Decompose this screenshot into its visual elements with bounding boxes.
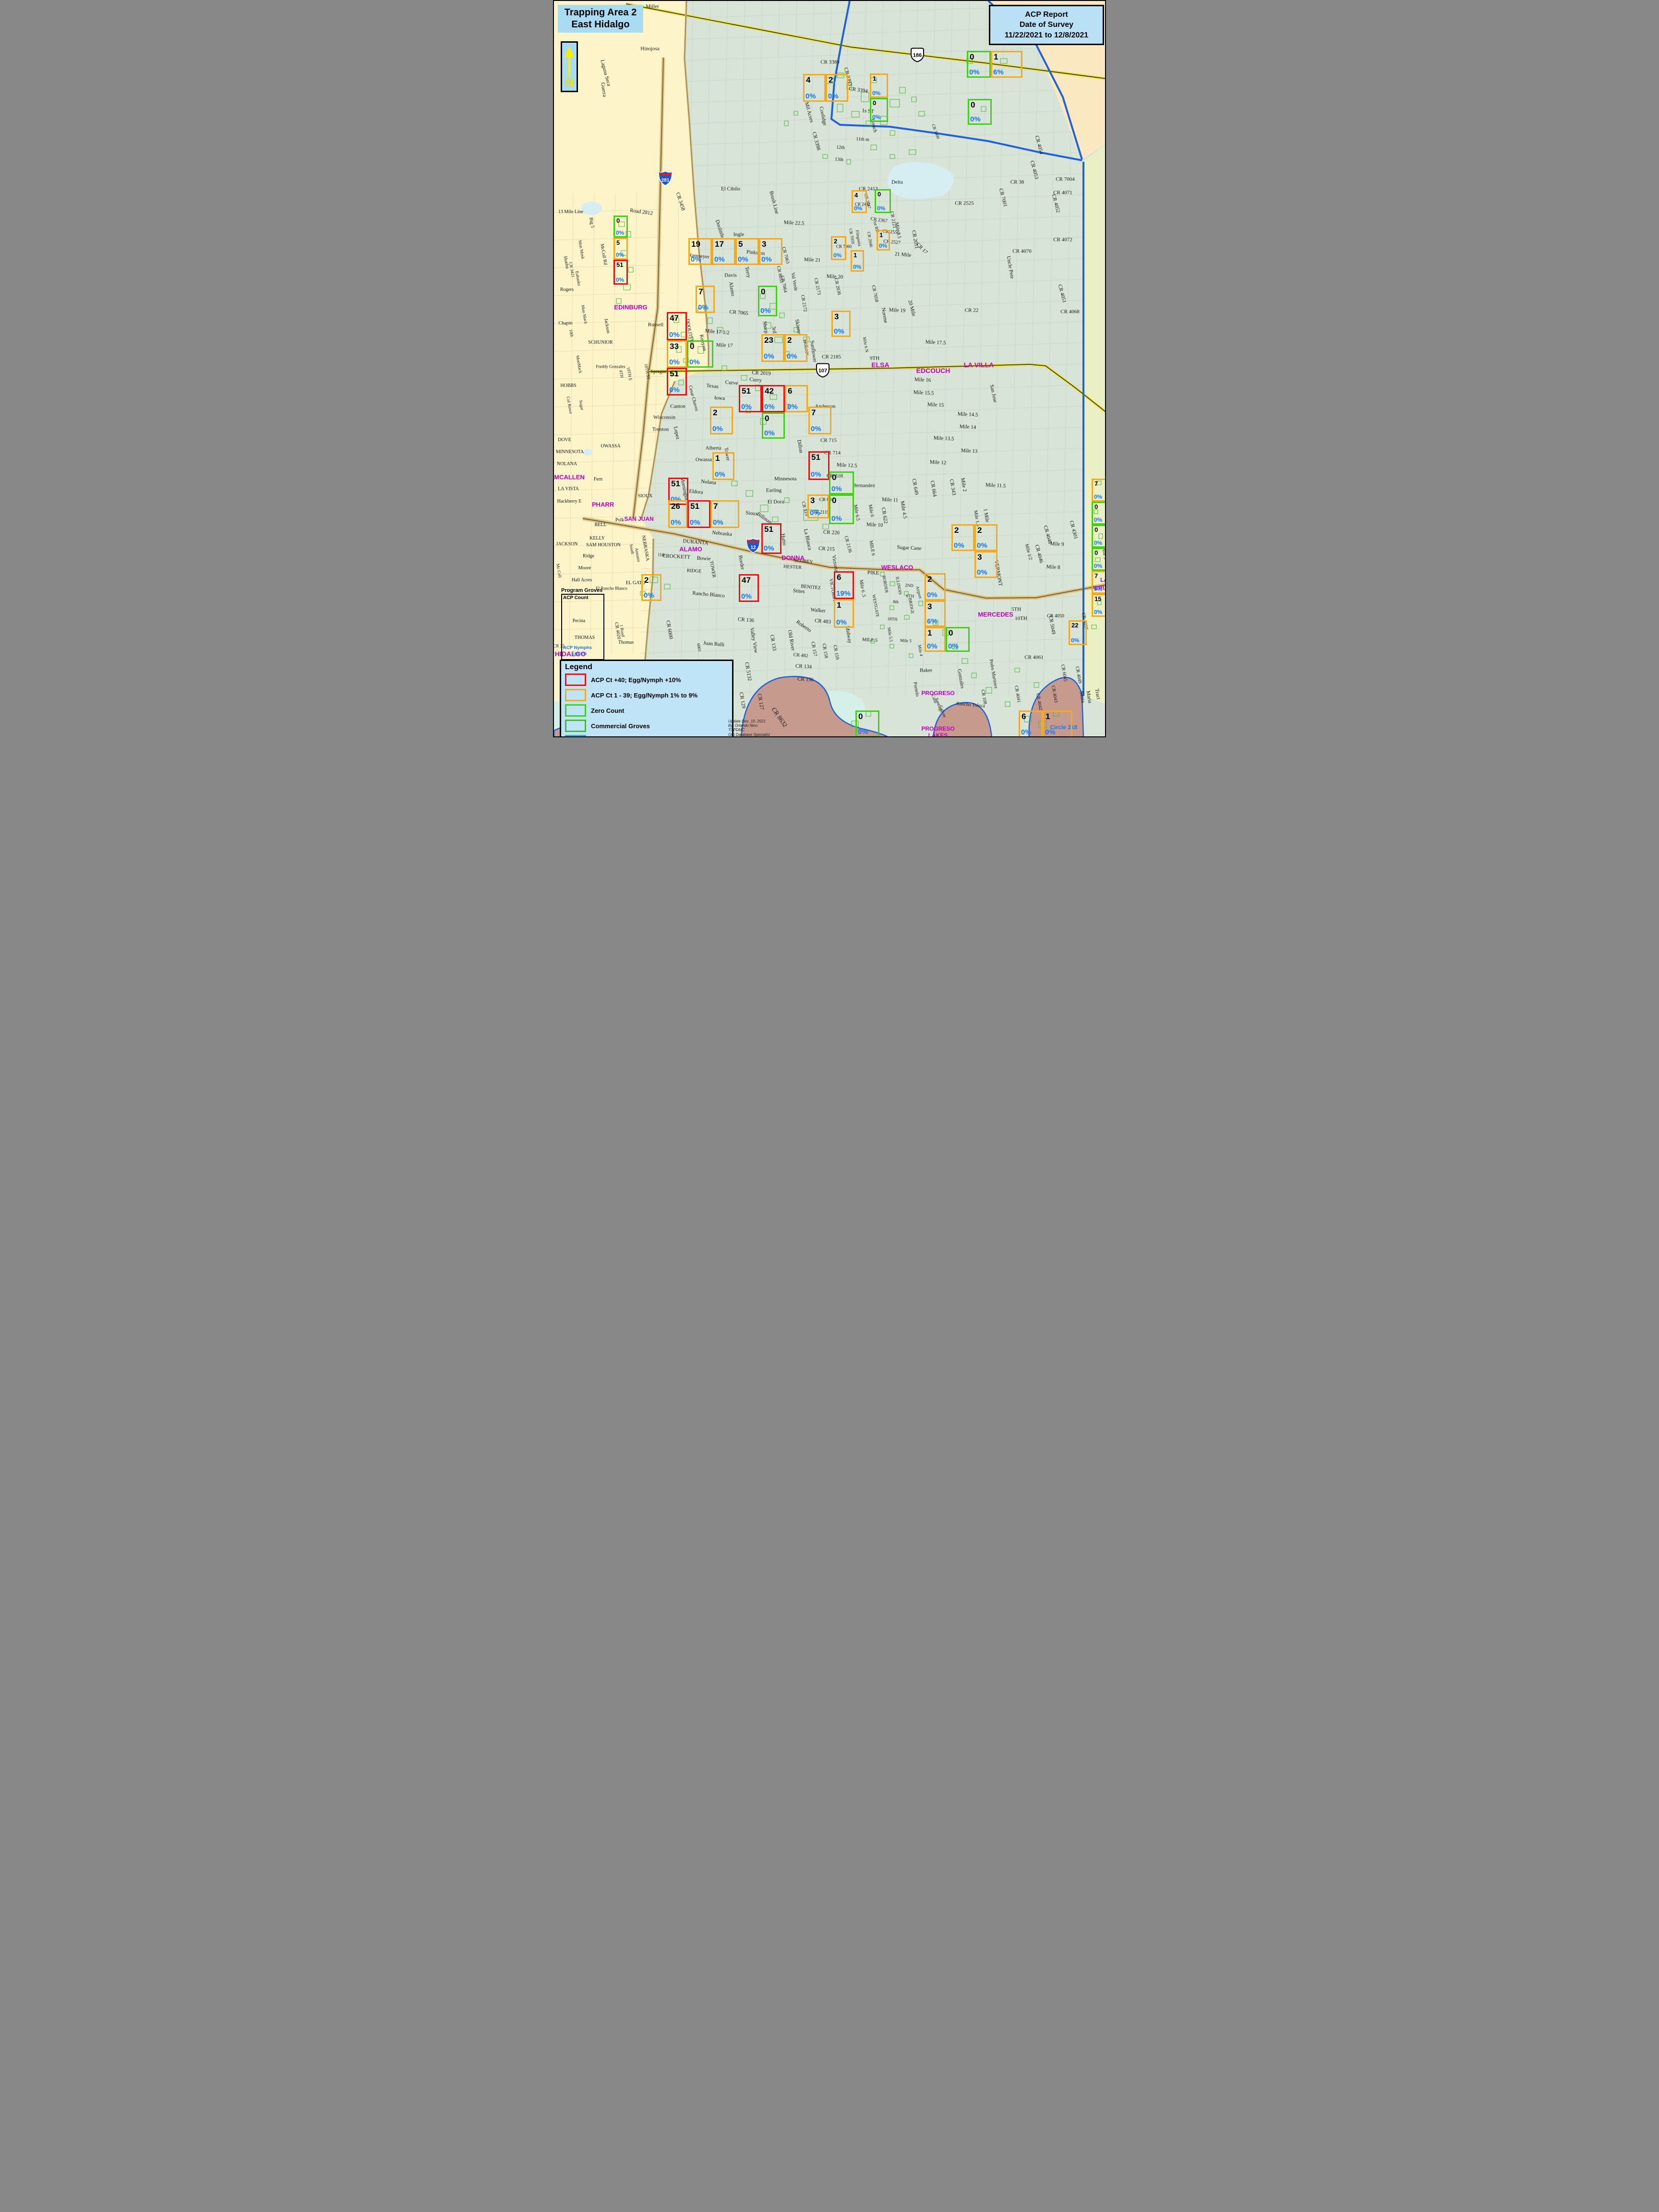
road-label: 18TH [887, 617, 897, 622]
acp-count: 7 [698, 287, 703, 297]
survey-box: 00% [829, 471, 854, 494]
egg-nymph-pct: 0% [1071, 637, 1079, 644]
update-note-line: By: Orlando Nino [728, 723, 770, 728]
program-groves-title: Program Groves [561, 588, 619, 593]
road-label: Moore [578, 566, 591, 571]
road-label: Ingle [733, 232, 745, 238]
city-label: ALAMO [679, 546, 702, 553]
survey-box: 00% [875, 189, 891, 213]
road-label: Mile 15 [927, 402, 944, 409]
road-label: HESTER [783, 565, 802, 570]
egg-nymph-pct: 0% [1094, 563, 1102, 569]
road-label: RIDGE [686, 568, 701, 574]
north-arrow-icon [562, 45, 577, 78]
legend-swatch [565, 689, 586, 701]
egg-nymph-pct: 0% [877, 205, 885, 212]
survey-box: 190% [688, 238, 712, 265]
city-label: PROGRESO [921, 690, 954, 696]
survey-box: 70% [1092, 479, 1106, 502]
road-label: Mile 14.5 [957, 411, 978, 418]
acp-count: 5 [616, 239, 620, 246]
legend-label: Zero Count [591, 707, 624, 714]
egg-nymph-pct: 0% [616, 229, 624, 236]
egg-nymph-pct: 0% [834, 327, 844, 336]
legend-swatch [565, 704, 586, 717]
road-label: Thomas [618, 640, 634, 645]
acp-count: 2 [644, 576, 649, 585]
acp-count: 1 [715, 454, 720, 463]
survey-box: 70% [1092, 571, 1106, 594]
legend-label: ACP Ct 1 - 39; Egg/Nymph 1% to 9% [591, 692, 697, 699]
survey-box: 00% [687, 340, 713, 368]
acp-nymphs-label: ACP Nymphs [563, 645, 592, 650]
road-label: Hall Acres [572, 578, 592, 583]
acp-count: 47 [742, 576, 751, 585]
update-notes: Update Dec. 10, 2021By: Orlando NinoTCPD… [728, 719, 770, 737]
svg-text:281: 281 [661, 178, 670, 183]
survey-box: 10% [851, 250, 864, 272]
road-label: 13 Mile Line [558, 210, 583, 215]
survey-box: 260% [668, 500, 687, 528]
egg-nymph-pct: 0% [715, 470, 725, 479]
road-label: 12th [836, 145, 845, 151]
survey-box: 40% [803, 74, 826, 102]
egg-nymph-pct: 0% [616, 252, 624, 258]
survey-box: 10% [1043, 710, 1072, 737]
road-label: CR 4068 [1060, 310, 1079, 315]
city-label: SAN JUAN [624, 516, 653, 522]
update-note-line: GIS Database Specialist [728, 733, 770, 737]
egg-nymph-pct: 0% [977, 568, 987, 577]
egg-nymph-pct: 0% [669, 386, 680, 394]
egg-nymph-pct: 0% [787, 403, 798, 411]
acp-count: 7 [811, 408, 816, 418]
acp-count: 0 [832, 496, 836, 505]
acp-count: 0 [858, 712, 863, 721]
egg-nymph-pct: 0% [811, 425, 821, 433]
road-label: Mile 13.5 [933, 435, 954, 442]
egg-nymph-pct: 0% [1045, 728, 1056, 736]
egg-nymph-pct: 0% [1094, 517, 1102, 523]
acp-count: 23 [764, 336, 773, 345]
acp-count: 0 [971, 100, 975, 110]
survey-box: 00% [1092, 502, 1106, 525]
egg-nymph-pct: 19% [836, 589, 851, 598]
city-label: PHARR [592, 502, 614, 508]
survey-box: 00% [870, 98, 888, 122]
egg-nymph-pct: 0% [669, 331, 680, 339]
egg-nymph-pct: 0% [671, 518, 681, 527]
acp-count-label: ACP Count [563, 595, 589, 601]
legend: Legend ACP Ct +40; Egg/Nymph +10%ACP Ct … [560, 660, 733, 737]
egg-nymph-pct: 0% [954, 541, 964, 550]
acp-count: 33 [670, 342, 679, 351]
north-arrow: N [561, 41, 578, 92]
acp-count: 3 [762, 240, 766, 249]
road-label: Mile 13 [961, 448, 977, 455]
egg-nymph-pct: 0% [698, 303, 709, 312]
egg-nymph-pct: 0% [872, 90, 880, 96]
road-label: Fern [594, 477, 602, 482]
road-label: CR 2525 [955, 201, 974, 206]
acp-count: 47 [670, 313, 679, 323]
map-title-box: Trapping Area 2 East Hidalgo [558, 5, 643, 33]
road-label: CR 4050 [1047, 614, 1064, 619]
acp-count: 7 [1094, 480, 1098, 487]
survey-box: 150% [1092, 594, 1106, 617]
acp-count: 0 [873, 99, 876, 107]
egg-nymph-pct: 0% [853, 264, 861, 270]
road-label: Mile 21 [804, 257, 820, 264]
legend-item: ACP Ct +40; Egg/Nymph +10% [565, 673, 728, 686]
road-label: Mile 9 [1050, 541, 1064, 548]
svg-text:107: 107 [818, 368, 827, 374]
acp-count: 0 [1094, 503, 1098, 510]
survey-box: 30% [759, 238, 782, 265]
egg-nymph-pct: 0% [969, 68, 980, 76]
survey-box: 30% [807, 494, 829, 518]
acp-count: 0 [616, 217, 620, 224]
acp-count: 3 [977, 553, 982, 562]
road-label: Chapin [559, 321, 573, 326]
acp-count: 51 [670, 369, 679, 379]
acp-count: 4 [854, 192, 858, 199]
survey-box: 510% [667, 368, 687, 396]
road-label: 5TH [1011, 607, 1021, 613]
egg-nymph-pct: 0% [927, 642, 938, 650]
road-label: Mile 5 [900, 638, 912, 643]
road-label: Davis [724, 273, 737, 278]
road-label: Iowa [714, 396, 725, 401]
egg-nymph-pct: 0% [714, 255, 725, 264]
legend-item: Route Boundaries [565, 735, 728, 737]
survey-box: 10% [925, 627, 946, 652]
road-label: 2ND [905, 583, 914, 588]
egg-nymph-pct: 0% [691, 255, 701, 264]
road-label: Delta [891, 180, 903, 185]
road-label: Texas [706, 383, 719, 389]
egg-nymph-pct: 0% [1094, 493, 1102, 500]
road-label: Mile 19 [889, 308, 905, 314]
acp-count: 3 [834, 312, 839, 322]
egg-nymph-pct: 0% [764, 429, 775, 437]
city-label: EDINBURG [614, 304, 647, 311]
survey-box: 510% [687, 500, 710, 528]
survey-box: 510% [739, 385, 762, 412]
road-label: SAM HOUSTON [586, 543, 621, 548]
road-label: El Cibilo [721, 187, 740, 192]
program-groves-box: ACP Count ACP Nymphs - Eggs% [561, 594, 604, 660]
road-label: Mile 10 [866, 522, 883, 529]
survey-box: 00% [1092, 548, 1106, 571]
road-label: CR 134 [795, 664, 812, 670]
north-label: N [565, 76, 573, 90]
road-label: Hackberry E [557, 499, 582, 504]
survey-box: 510% [613, 260, 628, 285]
city-label: PROGRESO [921, 726, 954, 732]
acp-count: 0 [878, 191, 881, 198]
survey-box: 00% [946, 627, 970, 652]
egg-nymph-pct: 0% [760, 307, 771, 315]
road-label: SIOUX [638, 494, 653, 499]
acp-count: 0 [761, 287, 765, 297]
road-label: Mile 12 [929, 460, 946, 466]
survey-box: 30% [831, 311, 851, 337]
road-label: LA VISTA [558, 487, 579, 492]
acp-count: 0 [970, 52, 974, 62]
acp-count: 6 [1022, 712, 1026, 721]
city-label: WESLACO [881, 565, 913, 571]
legend-label: Commercial Groves [591, 722, 650, 730]
road-label: Alberta [706, 446, 721, 451]
legend-title: Legend [565, 663, 728, 672]
survey-box: 510% [761, 523, 781, 554]
survey-box: 10% [877, 230, 890, 251]
report-line2: Date of Survey [1020, 20, 1073, 30]
acp-count: 1 [994, 52, 998, 62]
update-note-line: TCPDMC [728, 728, 770, 732]
update-note-line: For TCPDMC use only. [728, 737, 770, 737]
acp-count: 51 [616, 261, 623, 268]
city-label: ELSA [871, 361, 889, 368]
acp-count: 51 [671, 479, 680, 489]
acp-count: 1 [873, 75, 876, 82]
legend-item: ACP Ct 1 - 39; Egg/Nymph 1% to 9% [565, 689, 728, 701]
road-label: 8th [893, 600, 899, 604]
egg-nymph-pct: 0% [858, 728, 868, 736]
road-label: CR 22 [965, 308, 978, 313]
road-label: CR 7004 [1056, 177, 1074, 182]
egg-nymph-pct: 0% [787, 352, 797, 361]
survey-box: 30% [974, 551, 998, 578]
acp-count: 0 [690, 342, 694, 351]
road-label: CR 4070 [1012, 249, 1031, 254]
survey-box: 50% [735, 238, 759, 265]
survey-box: 220% [1069, 620, 1087, 645]
road-label: 4TH [618, 370, 624, 378]
survey-box: 619% [834, 571, 854, 599]
road-label: BELL [595, 523, 607, 528]
legend-label: ACP Ct +40; Egg/Nymph +10% [591, 676, 681, 684]
egg-nymph-pct: 0% [810, 509, 820, 517]
pond [583, 449, 592, 456]
map-title-line2: East Hidalgo [571, 19, 629, 31]
acp-count: 19 [691, 240, 700, 249]
survey-box: 16% [991, 51, 1022, 78]
egg-nymph-pct: 0% [764, 544, 774, 553]
survey-box: 00% [762, 412, 785, 439]
program-groves-key: Program Groves ACP Count ACP Nymphs - Eg… [561, 588, 619, 660]
legend-items: ACP Ct +40; Egg/Nymph +10%ACP Ct 1 - 39;… [565, 673, 728, 737]
survey-box: 70% [808, 407, 831, 434]
road-label: Rogers [560, 288, 574, 292]
survey-box: 10% [834, 599, 854, 628]
acp-count: 0 [949, 628, 953, 638]
road-label: Hinojosa [640, 47, 660, 52]
survey-box: 20% [826, 74, 848, 102]
survey-box: 510% [808, 451, 829, 480]
survey-box: 50% [613, 238, 628, 260]
road-label: El Dora [768, 500, 784, 505]
legend-item: Commercial Groves [565, 720, 728, 732]
survey-box: 70% [710, 500, 739, 528]
acp-survey-map: MillerHinojosaLaguna SecaGuerra13 Mile L… [553, 0, 1106, 737]
road-label: Hernandez [852, 483, 875, 489]
survey-box: 20% [784, 334, 807, 362]
road-label: CR 4072 [1053, 238, 1072, 243]
interstate-shield-12: 12 [745, 538, 761, 556]
acp-count: 1 [854, 252, 857, 259]
acp-count: 1 [927, 628, 932, 638]
survey-box: 20% [710, 407, 733, 434]
road-label: OWASSA [601, 444, 620, 449]
road-label: 6001 [696, 643, 702, 652]
egg-nymph-pct: 0% [1094, 609, 1102, 615]
road-label: Trenton [652, 427, 669, 433]
road-label: Mile 22.5 [783, 220, 804, 226]
us-highway-shield-186: 186 [909, 48, 926, 65]
acp-count: 2 [977, 526, 982, 535]
road-label: Mile 17 [716, 343, 733, 349]
road-label: Mile 17.5 [925, 339, 946, 346]
report-line1: ACP Report [1025, 10, 1068, 20]
survey-box: 170% [712, 238, 735, 265]
acp-count: 0 [765, 414, 769, 423]
acp-count: 2 [713, 408, 717, 418]
survey-box: 36% [925, 601, 946, 627]
road-label: CR 2185 [822, 355, 841, 360]
road-label: NOLANA [557, 462, 577, 467]
egg-nymph-pct: 0% [872, 114, 880, 120]
road-label: Polk [615, 518, 624, 523]
acp-count: 1 [837, 601, 841, 610]
road-label: CR 38 [1010, 180, 1024, 185]
egg-nymph-pct: 0% [1094, 586, 1102, 592]
survey-box: 20% [925, 573, 946, 601]
survey-box: 20% [974, 524, 998, 551]
acp-count: 2 [787, 336, 792, 345]
acp-count: 0 [1094, 549, 1098, 556]
egg-nymph-pct: 0% [761, 255, 772, 264]
survey-box: 470% [667, 312, 687, 340]
road-label: Mile 8 [1046, 565, 1060, 571]
road-label: 3rd [770, 326, 777, 334]
road-label: CR 715 [820, 438, 837, 444]
road-label: MINNESOTA [556, 450, 584, 455]
egg-nymph-pct: 6% [993, 68, 1004, 76]
egg-nymph-pct: 0% [833, 252, 842, 259]
road-label: Mile 12.5 [836, 462, 857, 469]
acp-count: 51 [742, 386, 751, 396]
survey-box: 40% [852, 190, 867, 213]
acp-count: 26 [671, 502, 680, 511]
egg-nymph-pct: 0% [854, 205, 862, 212]
egg-nymph-pct: 0% [831, 515, 842, 523]
road-label: Minnesota [774, 477, 796, 482]
pond [581, 202, 602, 215]
road-label: Wisconsin [653, 415, 675, 421]
road-label: Mile 11 [882, 497, 899, 504]
report-dates: 11/22/2021 to 12/8/2021 [1005, 30, 1088, 41]
report-box: ACP Report Date of Survey 11/22/2021 to … [989, 5, 1104, 45]
road-label: Freddy Gonzales [596, 365, 625, 369]
acp-count: 1 [1046, 712, 1050, 721]
egg-nymph-pct: 0% [1094, 540, 1102, 546]
survey-box: 20% [951, 524, 974, 551]
survey-box: 230% [761, 334, 784, 362]
egg-nymph-pct: 0% [690, 518, 700, 527]
road-label: Mile 16 [914, 377, 931, 384]
acp-count: 6 [788, 386, 792, 396]
egg-nymph-pct: 0% [927, 591, 938, 599]
egg-nymph-pct: 0% [713, 518, 723, 527]
survey-box: 60% [1019, 710, 1043, 737]
road-label: PIKE [867, 570, 879, 576]
us-highway-shield-107: 107 [815, 363, 831, 380]
egg-nymph-pct: 0% [741, 403, 752, 411]
road-label: Mile 14 [959, 424, 976, 431]
egg-nymph-pct: 0% [764, 403, 775, 411]
egg-nymph-pct: 0% [1021, 728, 1032, 736]
acp-count: 42 [765, 386, 774, 396]
survey-box: 20% [831, 236, 846, 260]
road-label: Curve [725, 380, 738, 386]
acp-count: 3 [810, 496, 815, 505]
egg-nymph-pct: 0% [828, 92, 839, 100]
survey-box: 00% [1092, 525, 1106, 548]
egg-nymph-pct: 0% [948, 642, 959, 650]
eggs-pct-label: - Eggs% [569, 651, 587, 656]
road-label: Owassa [696, 457, 712, 463]
egg-nymph-pct: 0% [831, 485, 842, 493]
svg-text:12: 12 [750, 545, 756, 551]
acp-count: 7 [1094, 572, 1098, 579]
road-label: 10TH [1015, 616, 1027, 622]
city-label: MERCEDES [978, 612, 1013, 618]
road-label: SCHUNIOR [588, 340, 613, 345]
city-label: EDCOUCH [916, 367, 950, 374]
road-label: Russell [648, 323, 663, 328]
egg-nymph-pct: 0% [764, 352, 774, 361]
road-label: MILE 5 [862, 637, 878, 643]
acp-count: 4 [806, 75, 810, 85]
survey-box: 420% [762, 385, 785, 412]
road-label: DOVE [558, 438, 571, 443]
survey-box: 00% [855, 710, 879, 737]
survey-box: 00% [968, 99, 992, 125]
interstate-shield-281: 281 [658, 170, 673, 189]
road-label: 10th [568, 329, 574, 337]
survey-box: 20% [641, 574, 661, 601]
road-label: Mile 11.5 [986, 482, 1006, 489]
acp-count: 2 [829, 75, 833, 85]
road-label: CR 3389 [820, 60, 839, 65]
acp-count: 15 [1094, 595, 1101, 602]
road-label: Mile 15.5 [913, 390, 934, 396]
city-label: MCALLEN [554, 474, 585, 481]
survey-box: 470% [739, 574, 759, 602]
acp-count: 7 [713, 502, 718, 511]
update-note-line: Update Dec. 10, 2021 [728, 719, 770, 723]
road-label: Ridge [583, 554, 594, 559]
legend-swatch [565, 673, 586, 686]
road-label: 13th [835, 157, 843, 163]
acp-count: 22 [1071, 622, 1078, 629]
road-label: CR 220 [823, 530, 840, 536]
survey-box: 00% [758, 286, 777, 316]
road-label: CR 2019 [752, 370, 771, 376]
acp-count: 51 [690, 502, 699, 511]
